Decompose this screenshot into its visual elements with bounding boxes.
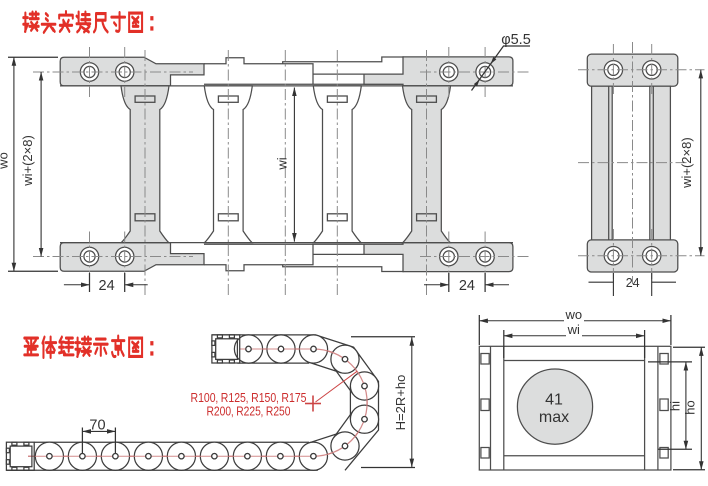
svg-text:hi: hi xyxy=(668,401,683,411)
svg-text:24: 24 xyxy=(99,278,115,294)
svg-text:wo: wo xyxy=(564,307,582,322)
svg-text:max: max xyxy=(539,409,569,426)
svg-text:70: 70 xyxy=(89,417,105,433)
svg-text:wi: wi xyxy=(275,157,290,170)
svg-text:wo: wo xyxy=(0,152,11,170)
svg-text:wi+(2×8): wi+(2×8) xyxy=(20,135,35,187)
svg-text:R200‚ R225‚ R250: R200‚ R225‚ R250 xyxy=(207,405,291,419)
svg-text:H=2R+ho: H=2R+ho xyxy=(393,375,408,431)
svg-text:wi+(2×8): wi+(2×8) xyxy=(679,137,694,189)
svg-text:24: 24 xyxy=(626,276,640,290)
svg-text:R100‚ R125‚ R150‚ R175: R100‚ R125‚ R150‚ R175 xyxy=(191,391,307,405)
svg-text:wi: wi xyxy=(567,322,580,337)
svg-text:24: 24 xyxy=(459,278,475,294)
svg-text:ho: ho xyxy=(683,400,698,414)
svg-text:41: 41 xyxy=(545,392,563,409)
